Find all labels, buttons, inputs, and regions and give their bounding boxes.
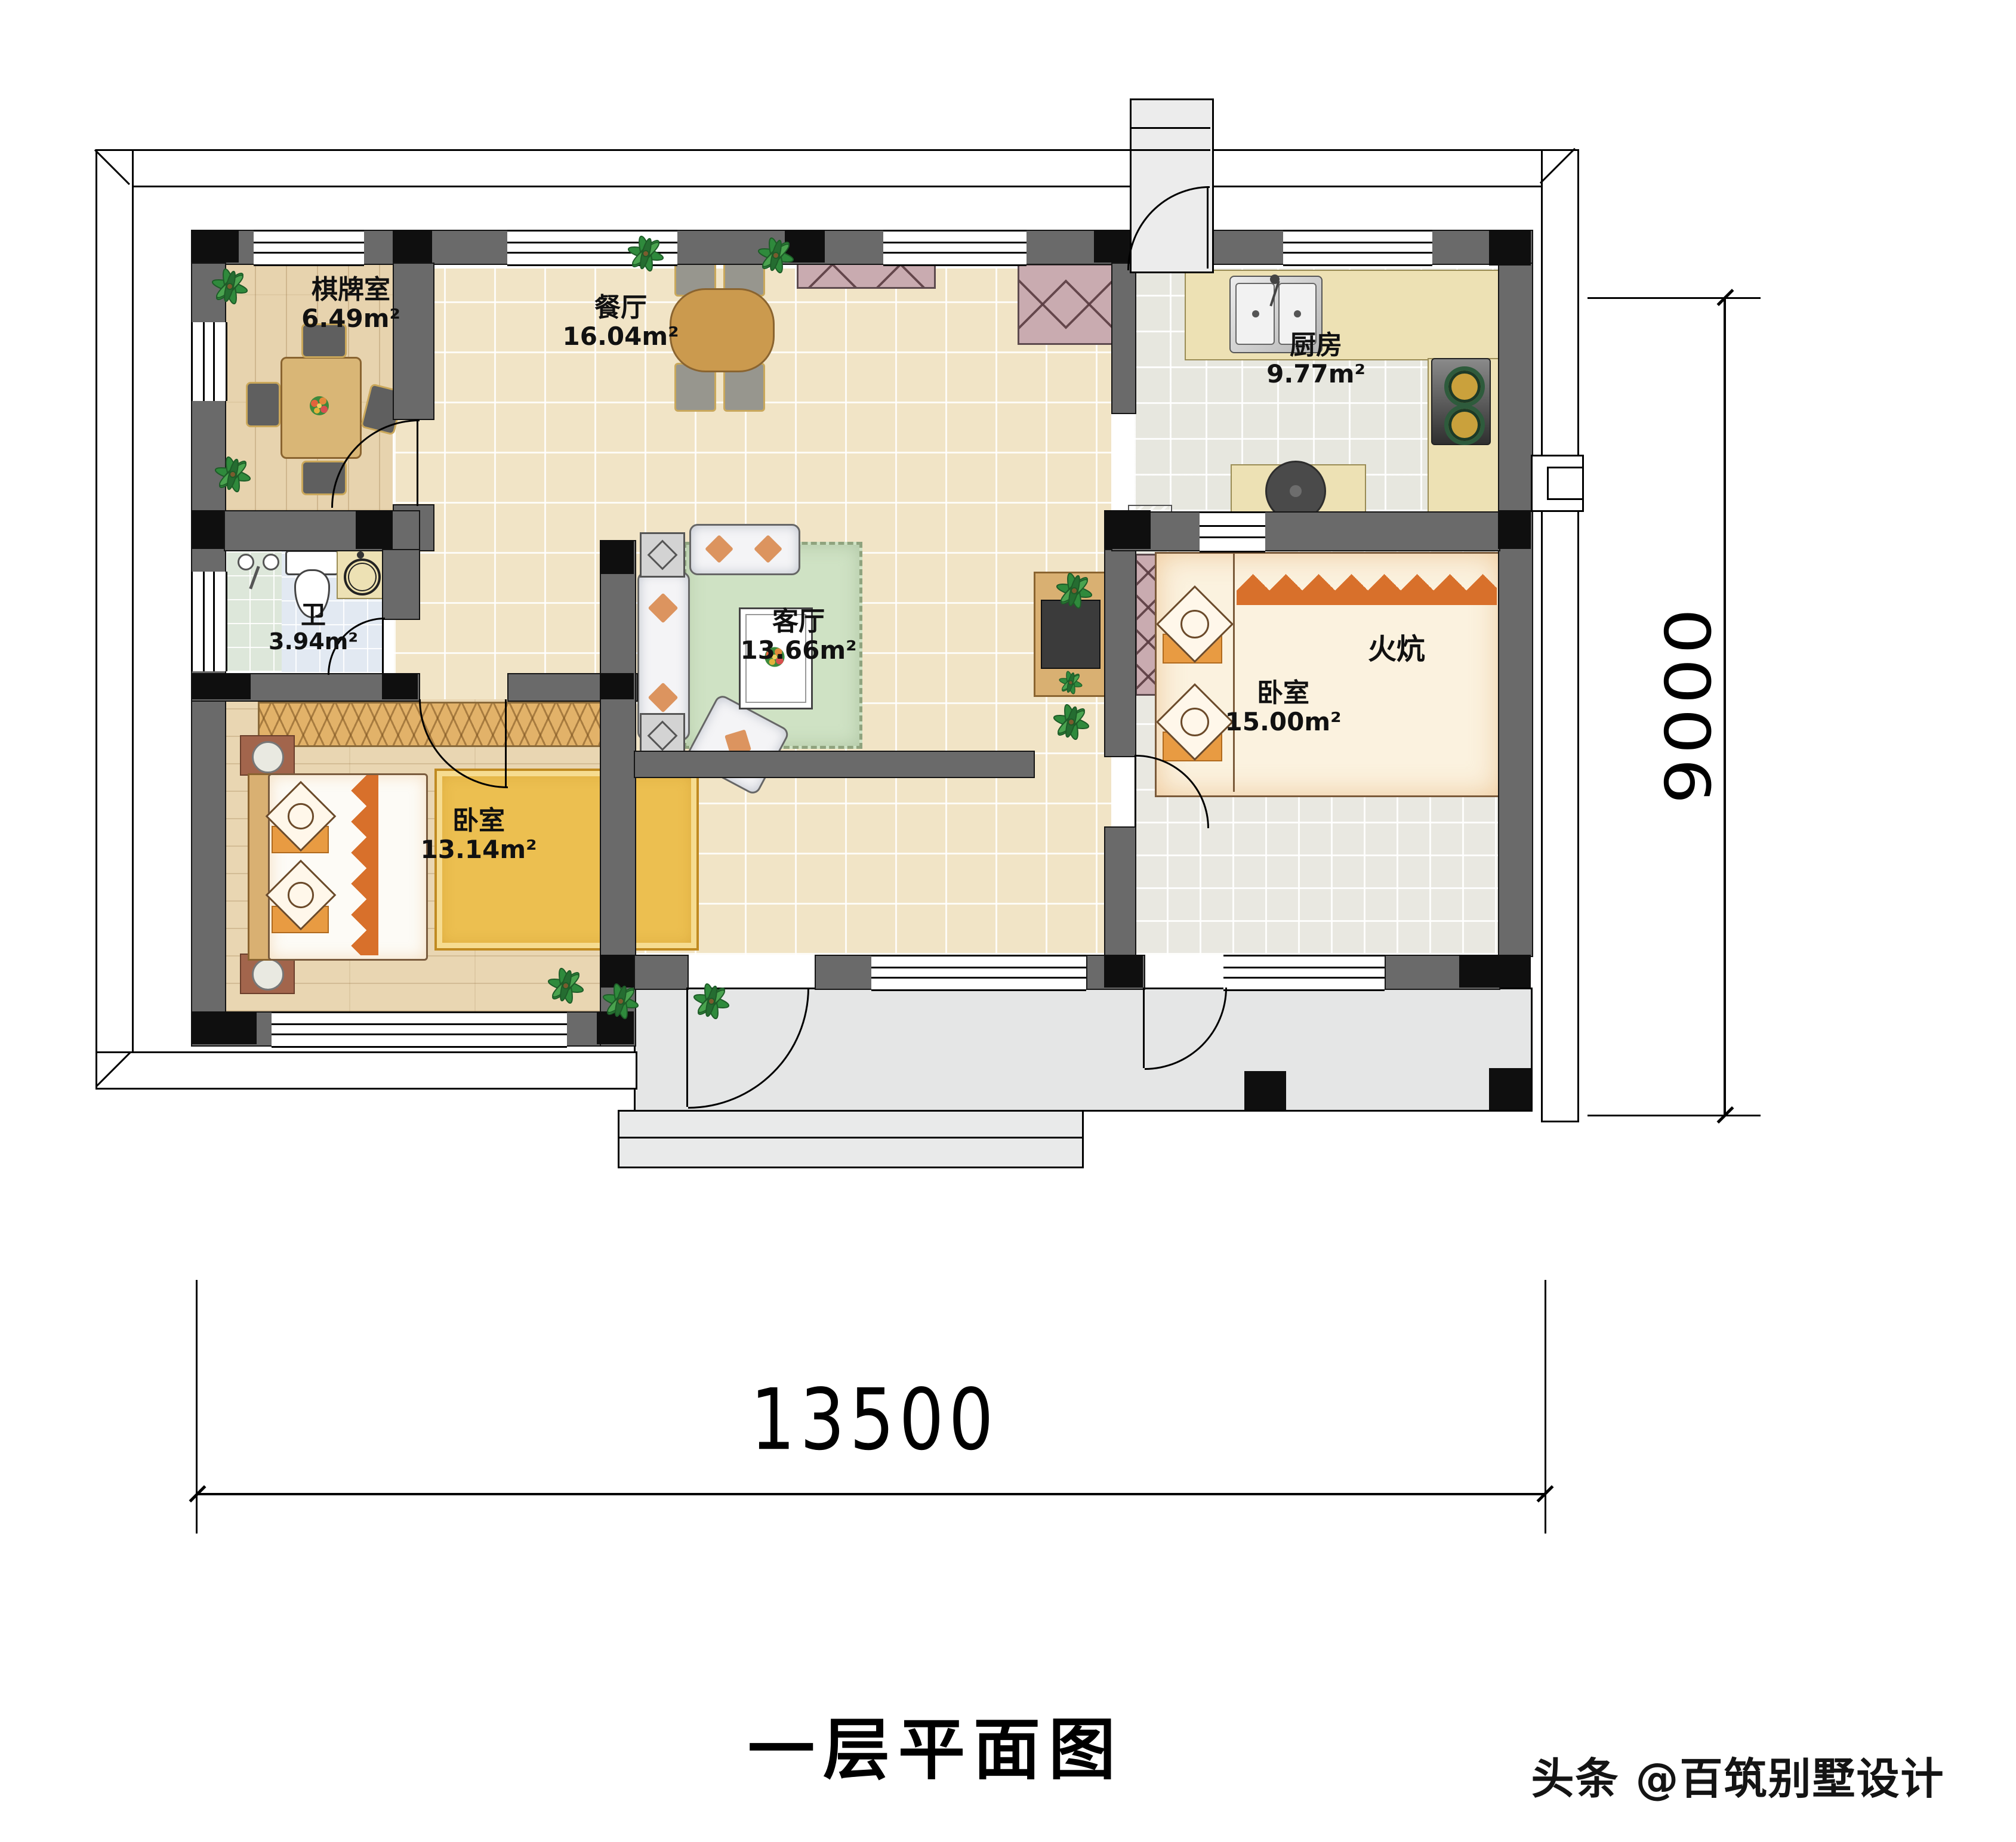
plant-icon — [752, 232, 800, 279]
wall-half — [634, 751, 1035, 778]
room-name: 客厅 — [740, 607, 856, 636]
room-name: 厨房 — [1266, 331, 1365, 360]
column — [382, 673, 418, 699]
exterior-band-bottom — [95, 1051, 637, 1090]
room-area: 9.77m² — [1266, 360, 1365, 388]
room-name: 卫 — [269, 601, 358, 629]
dim-ext-line — [1587, 297, 1761, 299]
wall-kitchen-south — [1111, 511, 1500, 551]
sofa-top — [689, 524, 800, 575]
room-name: 卧室 — [1225, 679, 1341, 708]
kang-divider — [1233, 554, 1235, 792]
room-label-chess: 棋牌室 6.49m² — [301, 276, 400, 334]
wall-bottom-s2 — [815, 955, 874, 990]
column — [191, 510, 224, 549]
chess-chair-left — [246, 382, 280, 427]
column — [1489, 1068, 1531, 1110]
window — [272, 1011, 567, 1048]
chess-table-plant — [304, 391, 334, 421]
side-table-1 — [640, 532, 685, 578]
kang-blanket-trim — [1237, 574, 1497, 605]
room-name: 卧室 — [420, 807, 537, 835]
tv-plant-icon — [1055, 667, 1086, 698]
room-area: 15.00m² — [1225, 708, 1341, 736]
column — [191, 1011, 257, 1044]
column — [1244, 1071, 1286, 1110]
room-label-bathroom: 卫 3.94m² — [269, 601, 358, 655]
room-label-bedroom-right: 卧室 15.00m² — [1225, 679, 1341, 737]
wall-dining-kitchen — [1111, 263, 1136, 414]
shower-handle-2 — [263, 554, 279, 570]
room-label-living: 客厅 13.66m² — [740, 607, 856, 665]
dim-label-9000: 9000 — [1617, 635, 1761, 773]
window — [1223, 955, 1385, 991]
column — [393, 230, 432, 263]
plant-icon — [622, 230, 670, 277]
room-label-kitchen: 厨房 9.77m² — [1266, 331, 1365, 389]
cabinet-dining-right — [1018, 264, 1114, 345]
column — [1104, 510, 1151, 549]
entry-step-1 — [618, 1110, 1084, 1140]
floor-plan-page: 13500 9000 棋牌室 6.49m² 餐厅 16.04m² 厨房 9.77… — [0, 0, 2016, 1842]
wall-bedr-west-2 — [1104, 826, 1136, 957]
column — [1489, 230, 1531, 266]
window — [1200, 511, 1265, 553]
kang-name: 火炕 — [1368, 634, 1425, 665]
column — [191, 673, 251, 699]
window — [191, 322, 227, 401]
column — [1459, 955, 1531, 988]
column — [1498, 510, 1531, 549]
room-area: 3.94m² — [269, 629, 358, 655]
room-area: 13.14m² — [420, 835, 537, 864]
plant-icon — [1050, 567, 1098, 615]
chimney-line-1 — [1130, 127, 1210, 129]
dim-label-13500: 13500 — [750, 1370, 998, 1469]
dim-line-horizontal — [196, 1493, 1546, 1495]
plant-icon — [542, 962, 590, 1010]
plant-icon — [1047, 698, 1095, 746]
nightstand-1 — [240, 735, 295, 776]
flue-vent-inner — [1547, 467, 1584, 500]
column — [600, 540, 634, 574]
window — [254, 230, 364, 266]
shower-handle-1 — [238, 554, 254, 570]
page-title: 一层平面图 — [748, 1696, 1124, 1792]
wall-bath-east-1 — [382, 549, 420, 620]
room-label-bedroom-left: 卧室 13.14m² — [420, 807, 537, 865]
wall-bedr-west-1 — [1104, 549, 1136, 757]
vanity-counter — [337, 550, 384, 599]
plant-icon — [688, 977, 735, 1025]
wall-right — [1498, 263, 1533, 957]
entry-step-2 — [618, 1137, 1084, 1168]
chimney-line-2 — [1130, 149, 1210, 151]
exterior-band-right — [1541, 149, 1579, 1122]
room-area: 16.04m² — [562, 322, 679, 351]
dining-table — [670, 288, 775, 372]
window — [191, 572, 227, 671]
exterior-band-left — [95, 149, 134, 1090]
column — [356, 510, 393, 549]
window — [883, 230, 1027, 266]
plant-icon — [597, 977, 645, 1025]
kang-label: 火炕 — [1368, 634, 1425, 665]
bed-blanket-trim — [351, 775, 378, 955]
window — [871, 955, 1086, 991]
room-area: 13.66m² — [740, 636, 856, 665]
room-name: 棋牌室 — [301, 276, 400, 304]
column — [191, 230, 239, 263]
room-label-dining: 餐厅 16.04m² — [562, 294, 679, 351]
exterior-band-top — [95, 149, 1579, 187]
room-area: 6.49m² — [301, 304, 400, 333]
window — [1283, 230, 1432, 266]
plant-icon — [206, 263, 254, 310]
dim-ext-line — [1587, 1115, 1761, 1116]
gas-stove — [1431, 358, 1491, 445]
plant-icon — [209, 451, 257, 498]
column — [1104, 955, 1143, 988]
watermark: 头条 @百筑别墅设计 — [1531, 1744, 1944, 1806]
column — [600, 673, 634, 699]
room-name: 餐厅 — [562, 294, 679, 322]
